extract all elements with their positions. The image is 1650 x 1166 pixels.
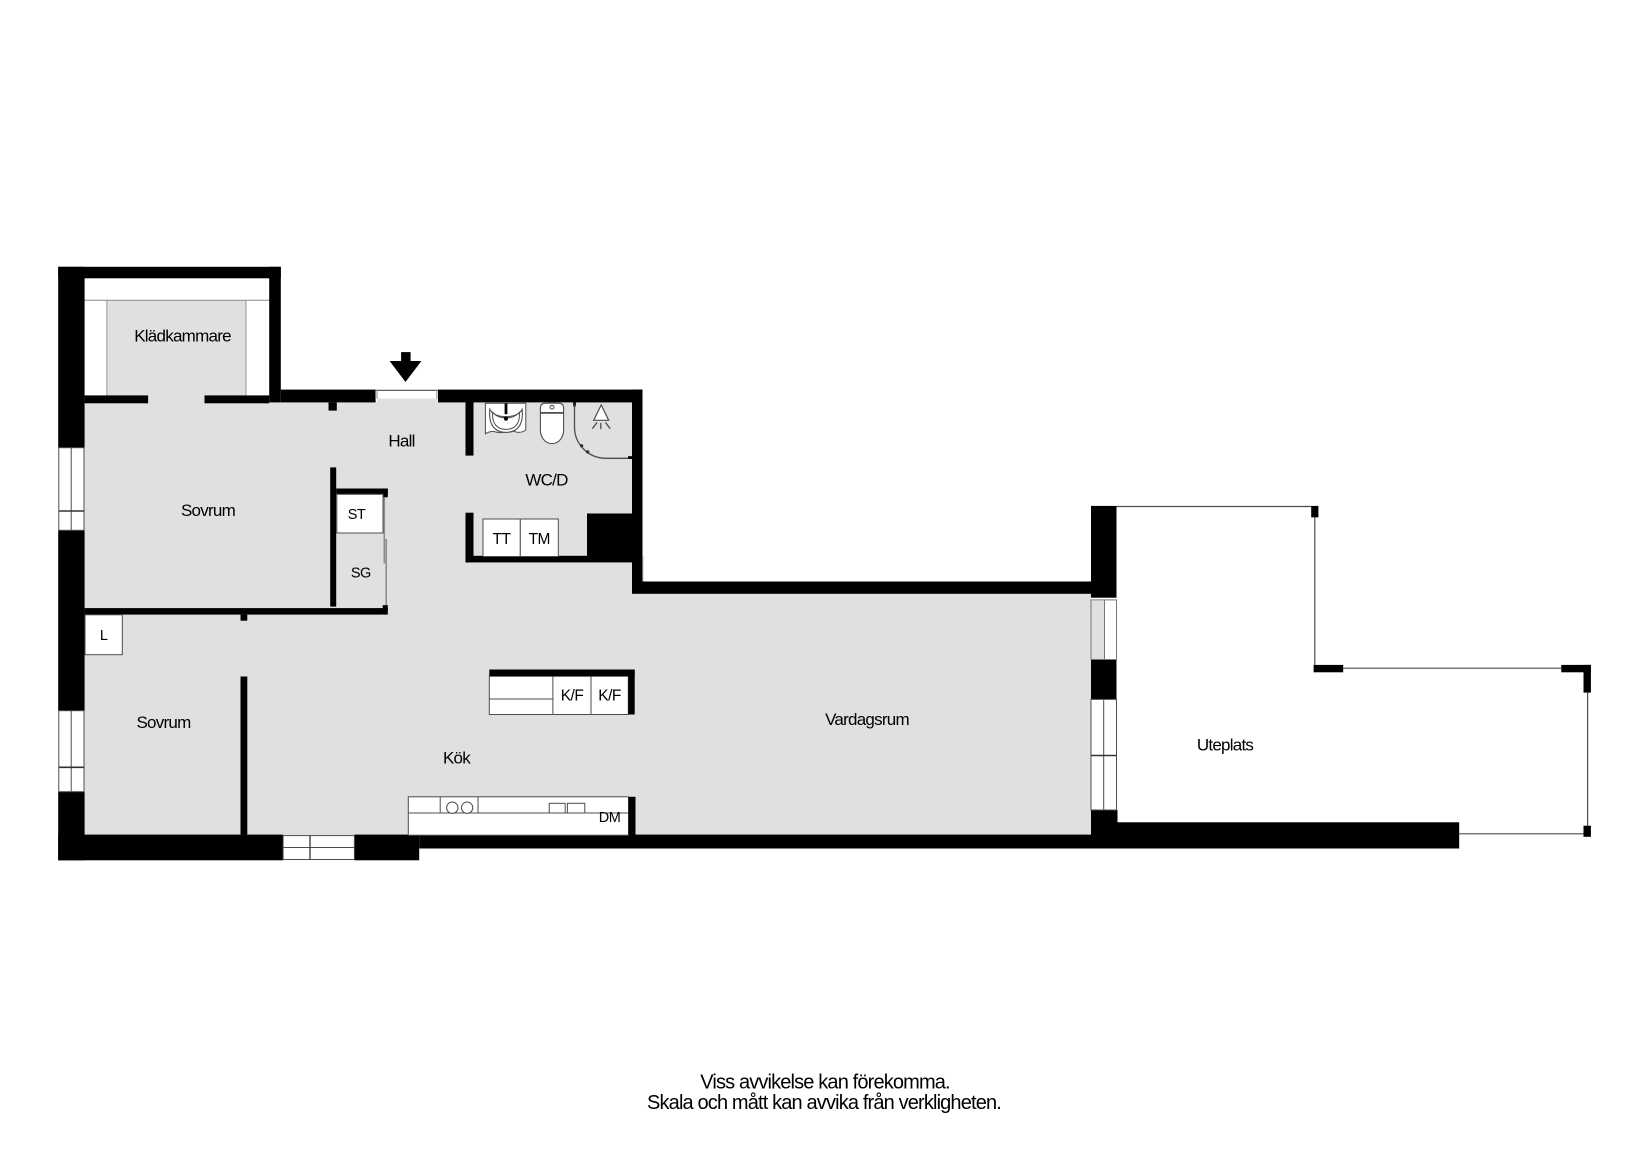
svg-text:TT: TT	[493, 531, 512, 548]
svg-text:Skala och mått kan avvika från: Skala och mått kan avvika från verklighe…	[647, 1092, 1001, 1114]
svg-text:Sovrum: Sovrum	[181, 501, 236, 520]
svg-text:Hall: Hall	[388, 432, 414, 451]
svg-text:Viss avvikelse kan förekomma.: Viss avvikelse kan förekomma.	[700, 1072, 950, 1094]
svg-text:SG: SG	[351, 566, 371, 582]
svg-text:DM: DM	[599, 810, 621, 826]
svg-text:WC/D: WC/D	[525, 471, 568, 490]
svg-text:ST: ST	[348, 507, 366, 523]
svg-text:Kök: Kök	[443, 749, 471, 768]
svg-text:K/F: K/F	[561, 688, 584, 705]
svg-text:Uteplats: Uteplats	[1197, 736, 1254, 755]
svg-text:Vardagsrum: Vardagsrum	[825, 710, 909, 729]
svg-text:K/F: K/F	[598, 688, 621, 705]
svg-text:Klädkammare: Klädkammare	[134, 327, 231, 346]
svg-text:TM: TM	[529, 531, 550, 548]
svg-text:Sovrum: Sovrum	[136, 713, 191, 732]
svg-text:L: L	[100, 628, 108, 644]
